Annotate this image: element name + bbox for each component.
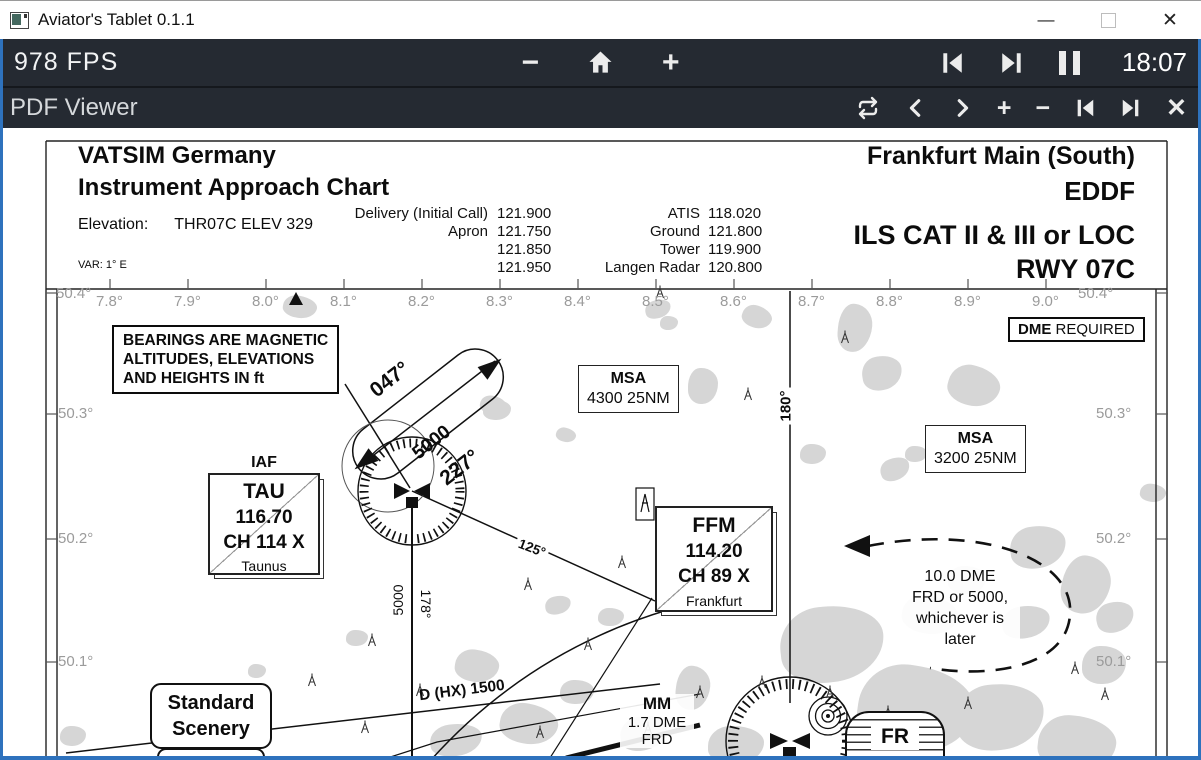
bearings-note-box: BEARINGS ARE MAGNETIC ALTITUDES, ELEVATI… bbox=[112, 325, 339, 394]
obstacle-icon bbox=[1072, 662, 1079, 675]
window-controls: — ✕ bbox=[1015, 1, 1201, 39]
variation-label: VAR: 1° E bbox=[78, 259, 127, 271]
skip-start-button[interactable] bbox=[939, 50, 965, 76]
latitude-label: 50.2° bbox=[58, 530, 93, 547]
skip-end-icon bbox=[1120, 97, 1142, 119]
window-border-left bbox=[0, 39, 3, 760]
home-button[interactable] bbox=[587, 49, 614, 76]
longitude-label: 8.5° bbox=[642, 293, 669, 310]
pdf-toolbar: PDF Viewer + − ✕ bbox=[0, 86, 1201, 128]
titlebar: Aviator's Tablet 0.1.1 — ✕ bbox=[0, 1, 1201, 39]
zoom-out-button[interactable]: − bbox=[521, 48, 539, 78]
obstacle-icon bbox=[619, 556, 626, 569]
skip-start-icon bbox=[939, 50, 965, 76]
latitude-label: 50.1° bbox=[1096, 653, 1131, 670]
maximize-icon bbox=[1101, 13, 1116, 28]
mountain-icon bbox=[289, 292, 303, 305]
longitude-label: 8.4° bbox=[564, 293, 591, 310]
obstacle-icon bbox=[697, 686, 704, 699]
pdf-zoom-in-button[interactable]: + bbox=[997, 96, 1012, 121]
maximize-button[interactable] bbox=[1077, 1, 1139, 39]
chart-title: Instrument Approach Chart bbox=[78, 174, 389, 202]
latitude-label: 50.4° bbox=[56, 285, 91, 302]
last-page-button[interactable] bbox=[1120, 97, 1142, 119]
fr-ndb-box: FR bbox=[845, 711, 945, 760]
pause-icon bbox=[1059, 51, 1080, 75]
chart-publisher: VATSIM Germany bbox=[78, 142, 276, 170]
plus-icon: + bbox=[997, 96, 1012, 121]
main-toolbar: 978 FPS − + 18:07 bbox=[0, 39, 1201, 86]
obstacle-icon bbox=[1102, 688, 1109, 701]
latitude-label: 50.2° bbox=[1096, 530, 1131, 547]
frequency-labels-left: Delivery (Initial Call) Apron bbox=[0, 205, 488, 241]
window-title: Aviator's Tablet 0.1.1 bbox=[38, 10, 195, 30]
obstacle-icon bbox=[842, 331, 849, 344]
longitude-label: 7.9° bbox=[174, 293, 201, 310]
obstacle-icon bbox=[362, 721, 369, 734]
latitude-label: 50.4° bbox=[1078, 285, 1113, 302]
pdf-page[interactable]: VATSIM Germany Instrument Approach Chart… bbox=[0, 128, 1201, 760]
obstacle-icon bbox=[745, 388, 752, 401]
pdf-zoom-out-button[interactable]: − bbox=[1035, 96, 1050, 121]
close-button[interactable]: ✕ bbox=[1139, 1, 1201, 39]
skip-start-icon bbox=[1074, 97, 1096, 119]
plus-icon: + bbox=[662, 48, 680, 78]
msa-box-east: MSA 3200 25NM bbox=[925, 425, 1026, 473]
boxed-obstacle-icon bbox=[636, 488, 654, 520]
middle-marker-note: MM 1.7 DME FRD bbox=[620, 694, 694, 748]
iaf-label: IAF bbox=[208, 454, 320, 472]
airport-icao: EDDF bbox=[854, 176, 1136, 207]
obstacle-icon bbox=[537, 726, 544, 739]
longitude-label: 8.2° bbox=[408, 293, 435, 310]
first-page-button[interactable] bbox=[1074, 97, 1096, 119]
app-icon bbox=[10, 12, 29, 29]
home-icon bbox=[587, 49, 614, 76]
longitude-label: 7.8° bbox=[96, 293, 123, 310]
longitude-label: 8.0° bbox=[252, 293, 279, 310]
minus-icon: − bbox=[1035, 96, 1050, 121]
fps-counter: 978 FPS bbox=[0, 48, 118, 77]
longitude-label: 8.8° bbox=[876, 293, 903, 310]
close-icon: ✕ bbox=[1162, 9, 1178, 32]
minus-icon: − bbox=[521, 48, 539, 78]
close-icon: ✕ bbox=[1166, 96, 1187, 121]
procedure-header: Frankfurt Main (South) EDDF ILS CAT II &… bbox=[854, 142, 1136, 285]
msa-box-west: MSA 4300 25NM bbox=[578, 365, 679, 413]
bearing-178-label: 178° bbox=[418, 587, 434, 622]
repeat-icon bbox=[855, 96, 881, 120]
obstacle-icon bbox=[309, 674, 316, 687]
longitude-label: 8.3° bbox=[486, 293, 513, 310]
next-page-button[interactable] bbox=[951, 96, 973, 120]
fr-ndb-ident: FR bbox=[871, 724, 919, 750]
pdf-close-button[interactable]: ✕ bbox=[1166, 96, 1187, 121]
longitude-label: 8.7° bbox=[798, 293, 825, 310]
rotate-page-button[interactable] bbox=[855, 96, 881, 120]
frequency-values-right: 118.020 121.800 119.900 120.800 bbox=[708, 205, 762, 277]
missed-approach-arrowhead bbox=[844, 535, 870, 557]
pause-button[interactable] bbox=[1059, 51, 1080, 75]
obstacle-icon bbox=[965, 697, 972, 710]
chevron-right-icon bbox=[951, 96, 973, 120]
longitude-label: 8.6° bbox=[720, 293, 747, 310]
holding-arrowhead bbox=[478, 352, 507, 379]
skip-end-icon bbox=[999, 50, 1025, 76]
obstacle-icon bbox=[369, 634, 376, 647]
prev-page-button[interactable] bbox=[905, 96, 927, 120]
ffm-vor-box: FFM 114.20 CH 89 X Frankfurt bbox=[655, 506, 773, 612]
longitude-label: 8.1° bbox=[330, 293, 357, 310]
scenery-box: Standard Scenery bbox=[150, 683, 272, 749]
minimize-button[interactable]: — bbox=[1015, 1, 1077, 39]
longitude-label: 8.9° bbox=[954, 293, 981, 310]
frequency-labels-right: ATIS Ground Tower Langen Radar bbox=[440, 205, 700, 277]
window-border-bottom bbox=[0, 756, 1201, 760]
altitude-5000-label: 5000 bbox=[390, 581, 406, 618]
procedure-name: ILS CAT II & III or LOC bbox=[854, 220, 1136, 251]
zoom-in-button[interactable]: + bbox=[662, 48, 680, 78]
latitude-label: 50.1° bbox=[58, 653, 93, 670]
dme-altitude-note: 10.0 DME FRD or 5000, whichever is later bbox=[900, 566, 1020, 650]
longitude-label: 9.0° bbox=[1032, 293, 1059, 310]
pdf-viewer-title: PDF Viewer bbox=[0, 94, 138, 122]
airport-name: Frankfurt Main (South) bbox=[854, 142, 1136, 171]
minimize-icon: — bbox=[1038, 10, 1055, 30]
chevron-left-icon bbox=[905, 96, 927, 120]
latitude-label: 50.3° bbox=[1096, 405, 1131, 422]
dme-required-box: DME REQUIRED bbox=[1008, 317, 1145, 342]
runway-name: RWY 07C bbox=[854, 254, 1136, 285]
obstacle-icon bbox=[525, 578, 532, 591]
tau-vor-box: TAU 116.70 CH 114 X Taunus bbox=[208, 473, 320, 575]
latitude-label: 50.3° bbox=[58, 405, 93, 422]
app-window: Aviator's Tablet 0.1.1 — ✕ 978 FPS − + 1… bbox=[0, 0, 1201, 760]
skip-end-button[interactable] bbox=[999, 50, 1025, 76]
bearing-180-label: 180° bbox=[778, 387, 795, 424]
clock: 18:07 bbox=[1122, 47, 1187, 78]
